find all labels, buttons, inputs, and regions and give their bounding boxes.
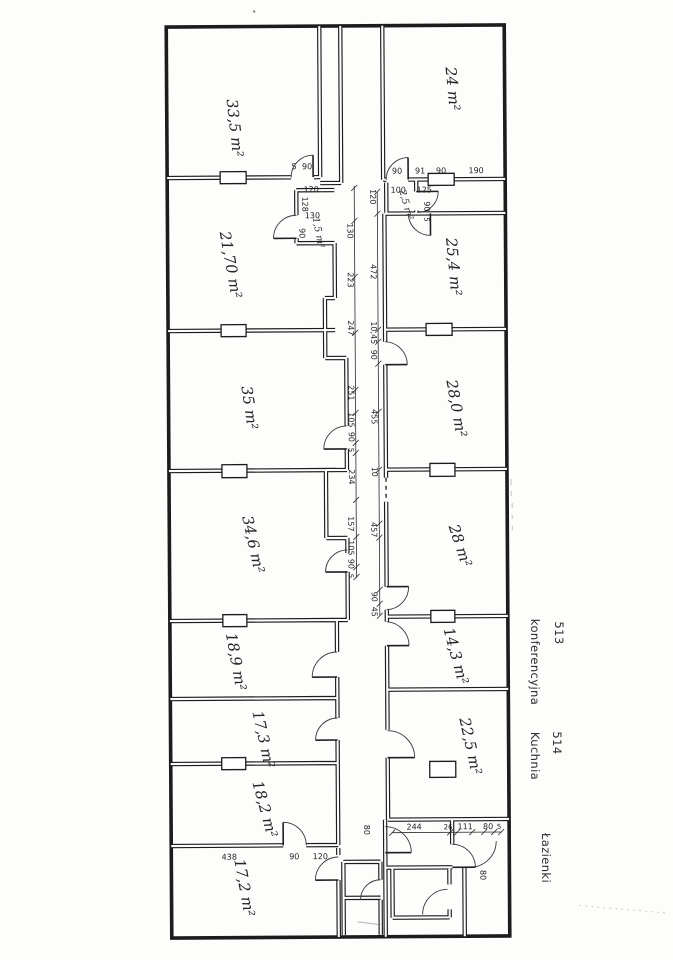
dim-label: 244: [406, 822, 421, 831]
window-symbol: [426, 323, 452, 335]
room-label: 28,0 m²: [442, 377, 470, 439]
dim-label: 100: [391, 186, 406, 195]
room-label: 18,2 m²: [248, 779, 281, 840]
dim-label: 120: [304, 185, 319, 194]
dim-label: 120: [313, 852, 328, 861]
dim-label: 45: [370, 607, 379, 617]
scanned-floor-plan-page: 33,5 m² 21,70 m² 35 m² 34,6 m² 18,9 m² 1…: [0, 0, 673, 960]
dim-label: 455: [370, 409, 379, 424]
dim-label: 90: [346, 559, 355, 569]
dim-label: 5: [497, 823, 502, 831]
room-labels-small: 1,5 m² 2,5 m²: [310, 188, 416, 250]
dim-label: 105: [346, 540, 355, 555]
dim-label: 438: [222, 853, 237, 862]
dim-label: 251: [346, 385, 355, 400]
room-label: 21,70 m²: [215, 229, 245, 300]
plan-content: 33,5 m² 21,70 m² 35 m² 34,6 m² 18,9 m² 1…: [166, 8, 667, 938]
dim-label: 130: [345, 223, 354, 238]
dim-label: 190: [468, 166, 483, 175]
room-label: 28 m²: [444, 521, 475, 569]
dim-label: 90: [370, 592, 379, 602]
dim-label: 125: [417, 185, 432, 194]
room-label: 18,9 m²: [222, 631, 250, 692]
dotted-noise: [580, 905, 667, 914]
annotation-room-number: 514: [550, 731, 564, 754]
room-label: 34,6 m²: [238, 514, 268, 575]
dim-label: 223: [346, 272, 355, 287]
dim-label: 5: [422, 217, 430, 222]
dim-label: 90: [369, 350, 378, 360]
dim-label: 90: [392, 167, 402, 176]
room-label: 24 m²: [441, 65, 463, 112]
dim-label: 80: [483, 822, 493, 831]
side-annotations: 513 konferencyjna 514 Kuchnia Łazienki: [528, 619, 566, 883]
dim-label: 80: [478, 870, 487, 880]
dim-label: 5: [347, 448, 355, 453]
dimension-chains: [351, 184, 504, 836]
window-symbol: [222, 758, 246, 770]
table-symbol: [430, 761, 456, 777]
dim-label: 10,45: [369, 321, 378, 344]
dim-label: 457: [369, 522, 378, 537]
room-label: 22,5 m²: [455, 715, 485, 777]
window-symbol: [221, 325, 246, 337]
room-label: 35 m²: [237, 385, 261, 431]
dim-label: 472: [369, 264, 378, 279]
window-symbol: [220, 172, 246, 184]
annotation-room-number: 513: [552, 621, 566, 644]
scan-dot: [253, 10, 256, 13]
room-label: 33,5 m²: [223, 98, 247, 158]
pencil-mark: [358, 922, 381, 925]
room-label: 14,3 m²: [439, 625, 472, 686]
dim-label: 5: [292, 162, 297, 171]
dim-label: 130: [305, 211, 320, 220]
faint-marks: [511, 479, 512, 530]
window-symbol: [223, 615, 247, 627]
room-label: 17,2 m²: [230, 857, 258, 918]
dim-label: 128: [300, 197, 309, 212]
interior-walls: [166, 25, 510, 938]
dim-label: 90: [436, 166, 446, 175]
window-symbol: [431, 610, 455, 622]
dim-label: 234: [347, 469, 356, 484]
dim-label: 91: [415, 166, 425, 175]
scan-artifacts: [253, 8, 667, 926]
dim-label: 247: [346, 320, 355, 335]
dim-label: 90: [347, 432, 356, 442]
dim-label: 90: [297, 228, 306, 238]
window-symbol: [430, 463, 455, 476]
room-label: 17,3 m²: [248, 709, 278, 770]
dim-label: 80: [362, 825, 371, 835]
dim-label: 120: [368, 189, 377, 204]
floor-plan-drawing: 33,5 m² 21,70 m² 35 m² 34,6 m² 18,9 m² 1…: [0, 0, 673, 960]
dim-label: 105: [347, 412, 356, 427]
annotation-room-name: Kuchnia: [528, 732, 542, 780]
dim-label: 26: [444, 823, 454, 831]
dim-label: 10: [370, 467, 379, 477]
dim-label: 5: [347, 574, 355, 579]
dim-label: 90: [302, 162, 312, 171]
dim-label: 111: [457, 822, 472, 831]
annotation-room-name: Łazienki: [539, 832, 553, 883]
room-label: 25,4 m²: [442, 236, 465, 297]
window-symbol: [222, 465, 247, 478]
annotation-room-name: konferencyjna: [528, 619, 542, 705]
dim-label: 90: [289, 852, 299, 861]
dim-label: 90: [422, 201, 431, 211]
room-labels-left: 33,5 m² 21,70 m² 35 m² 34,6 m² 18,9 m² 1…: [215, 98, 282, 918]
dim-label: 157: [346, 516, 355, 531]
